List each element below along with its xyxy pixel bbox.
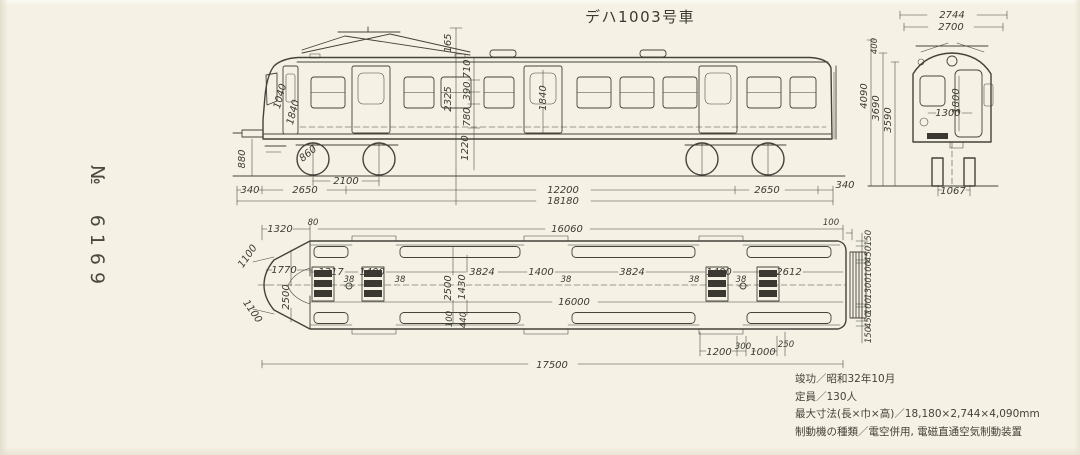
dimension-label: 2500 bbox=[281, 284, 292, 309]
roof-vent bbox=[490, 50, 516, 57]
dimension-label: 340 bbox=[835, 180, 854, 191]
side-dimension-lines bbox=[237, 28, 833, 205]
dimension-label: 450 bbox=[864, 246, 874, 262]
dimension-label: 1300 bbox=[864, 277, 874, 299]
bench-seats bbox=[314, 247, 831, 324]
dimension-label: 1317 bbox=[318, 267, 344, 278]
dimension-label: 340 bbox=[240, 185, 259, 196]
dimension-label: 3590 bbox=[883, 107, 894, 132]
dimension-label: 250 bbox=[778, 340, 794, 350]
dimension-label: 300 bbox=[735, 342, 751, 352]
dimension-label: 2744 bbox=[939, 10, 964, 21]
end-window bbox=[920, 76, 945, 106]
dimension-label: 780 bbox=[462, 107, 473, 126]
passenger-windows bbox=[311, 77, 816, 108]
dimension-label: 1840 bbox=[538, 85, 549, 110]
dimension-label: 1320 bbox=[267, 224, 292, 235]
dimension-label: 2650 bbox=[754, 185, 779, 196]
dimension-label: 1400 bbox=[706, 267, 731, 278]
dimension-label: 1220 bbox=[460, 135, 471, 160]
builder-plate bbox=[927, 133, 948, 139]
dimension-label: 100 bbox=[823, 218, 839, 228]
technical-drawing: 2100340265012200265034018180880165232571… bbox=[0, 0, 1080, 455]
dimension-label: 38 bbox=[395, 275, 406, 285]
dimension-label: 1100 bbox=[240, 298, 264, 325]
dimension-label: 100 bbox=[445, 311, 455, 327]
dimension-label: 2325 bbox=[443, 86, 454, 111]
dimension-label: 1840 bbox=[285, 99, 302, 126]
dimension-label: 1067 bbox=[940, 186, 966, 197]
dimension-label: 38 bbox=[344, 275, 355, 285]
dimension-label: 2612 bbox=[776, 267, 801, 278]
headlight bbox=[947, 56, 957, 66]
dimension-label: 12200 bbox=[547, 185, 579, 196]
dimension-label: 150 bbox=[864, 327, 874, 343]
dimension-label: 880 bbox=[237, 149, 248, 168]
dimension-label: 2700 bbox=[938, 22, 963, 33]
dimension-label: 400 bbox=[870, 38, 880, 54]
dimension-label: 80 bbox=[308, 218, 319, 228]
dimension-label: 17500 bbox=[536, 360, 568, 371]
dimension-label: 3690 bbox=[871, 95, 882, 120]
dimension-label: 2650 bbox=[292, 185, 317, 196]
dimension-label: 440 bbox=[459, 312, 469, 328]
end-wheel bbox=[964, 158, 975, 186]
dimension-label: 100 bbox=[864, 261, 874, 277]
dimension-label: 38 bbox=[689, 275, 700, 285]
dimension-label: 450 bbox=[864, 312, 874, 328]
dimension-label: 2100 bbox=[333, 176, 358, 187]
dimension-label: 1200 bbox=[706, 347, 731, 358]
dimension-label: 1770 bbox=[271, 265, 296, 276]
dimension-label: 1040 bbox=[272, 83, 289, 110]
dimension-label: 390 bbox=[462, 81, 473, 100]
dimension-label: 3824 bbox=[469, 267, 494, 278]
dimension-label: 2500 bbox=[443, 275, 454, 300]
dimension-label: 1300 bbox=[935, 108, 960, 119]
dimension-label: 18180 bbox=[547, 196, 579, 207]
end-dimension-lines bbox=[867, 11, 1007, 196]
dimension-label: 3824 bbox=[619, 267, 644, 278]
dimension-label: 16060 bbox=[551, 224, 583, 235]
dimension-label: 710 bbox=[462, 59, 473, 78]
dimension-label: 1400 bbox=[359, 267, 384, 278]
dimension-label: 860 bbox=[298, 144, 320, 165]
dimension-label: 1000 bbox=[750, 347, 775, 358]
roof-vent bbox=[640, 50, 666, 57]
dimension-label: 4090 bbox=[859, 83, 870, 108]
dimension-label: 100 bbox=[864, 298, 874, 314]
dimension-label: 150 bbox=[864, 230, 874, 246]
rear-bogie bbox=[685, 142, 786, 176]
dimension-label: 1430 bbox=[457, 274, 468, 299]
side-elevation bbox=[233, 27, 845, 205]
dimension-label: 1400 bbox=[528, 267, 553, 278]
dimension-label: 38 bbox=[561, 275, 572, 285]
dimension-label: 165 bbox=[443, 33, 454, 52]
dimension-label: 1100 bbox=[236, 243, 260, 270]
end-wheel bbox=[932, 158, 943, 186]
front-coupler bbox=[233, 130, 286, 152]
dimension-label: 38 bbox=[736, 275, 747, 285]
scanned-card: デハ1003号車 №6169 竣功／昭和32年10月 定員／130人 最大寸法(… bbox=[0, 0, 1080, 455]
end-view bbox=[867, 11, 1007, 196]
dimension-label: 16000 bbox=[558, 297, 590, 308]
